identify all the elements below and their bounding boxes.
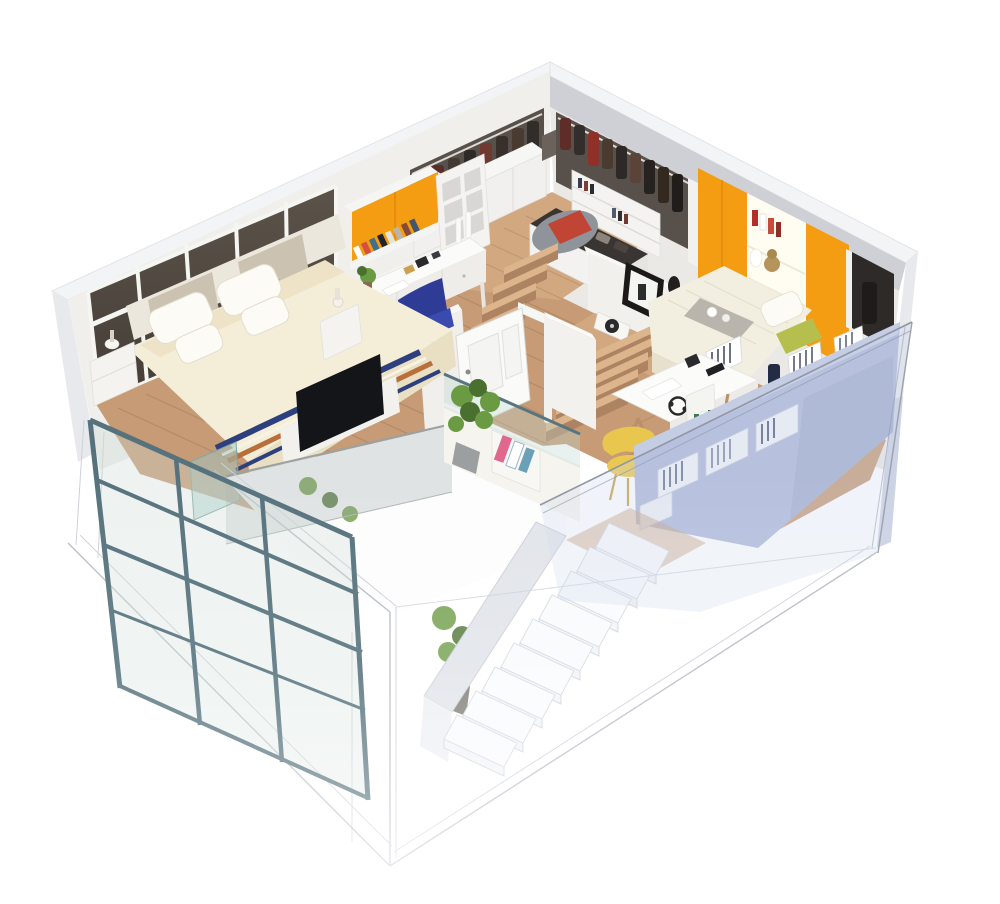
floorplan-stage xyxy=(0,0,1000,904)
door-panel-2 xyxy=(502,324,522,379)
hanging-coat xyxy=(862,282,877,324)
desk-leg-right xyxy=(482,282,484,308)
door-knob xyxy=(466,370,471,375)
loft-cutaway-render xyxy=(0,0,1000,904)
niche-frame xyxy=(846,249,852,330)
ghost-fade-overlay xyxy=(0,470,1000,904)
